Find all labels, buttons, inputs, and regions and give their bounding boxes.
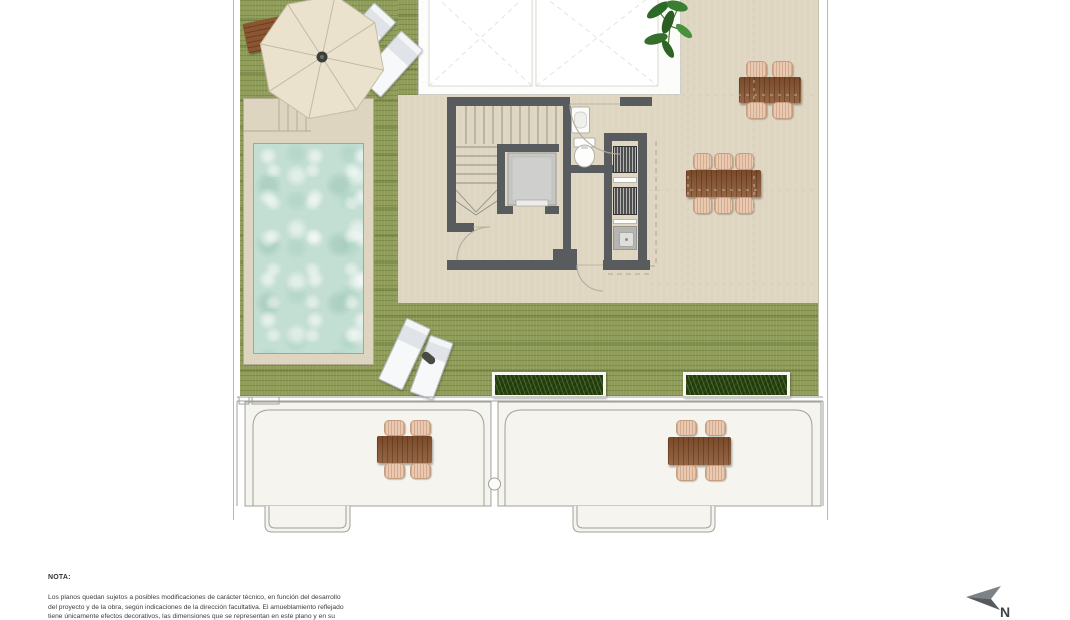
planter <box>683 372 790 398</box>
dining-table <box>739 77 801 103</box>
note-heading: NOTA: <box>48 574 368 581</box>
note-line: tiene únicamente efectos decorativos, la… <box>48 612 368 620</box>
chair <box>384 420 405 436</box>
note-line: Los planos quedan sujetos a posibles mod… <box>48 593 368 603</box>
note-line: del proyecto y de la obra, según indicac… <box>48 603 368 613</box>
chair <box>714 153 733 170</box>
chair <box>705 420 726 436</box>
lower-room-right <box>498 402 821 506</box>
chair <box>772 102 793 119</box>
chair <box>746 61 767 78</box>
shelf <box>613 177 637 183</box>
shelf <box>613 219 637 224</box>
drain-icon <box>619 232 634 247</box>
note-block: NOTA: Los planos quedan sujetos a posibl… <box>48 574 368 620</box>
ventilation-unit <box>613 187 637 215</box>
chair <box>705 465 726 481</box>
chair <box>693 197 712 214</box>
chair <box>693 153 712 170</box>
chair <box>714 197 733 214</box>
dining-table <box>377 436 432 463</box>
skylight-area <box>418 0 681 95</box>
chair <box>772 61 793 78</box>
dining-table <box>668 437 731 465</box>
chair <box>735 153 754 170</box>
floor-plan-canvas: NOTA: Los planos quedan sujetos a posibl… <box>0 0 1070 620</box>
utility-sink-unit <box>613 226 637 250</box>
ventilation-unit <box>613 146 637 173</box>
north-label: N <box>1000 604 1010 620</box>
chair <box>676 465 697 481</box>
chair <box>746 102 767 119</box>
lower-room-left <box>245 402 491 506</box>
north-arrow-icon <box>966 586 1001 610</box>
chair <box>410 420 431 436</box>
planter <box>492 372 606 398</box>
swimming-pool <box>253 143 364 354</box>
chair <box>735 197 754 214</box>
chair <box>410 463 431 479</box>
dining-table <box>686 170 761 197</box>
chair <box>384 463 405 479</box>
chair <box>676 420 697 436</box>
